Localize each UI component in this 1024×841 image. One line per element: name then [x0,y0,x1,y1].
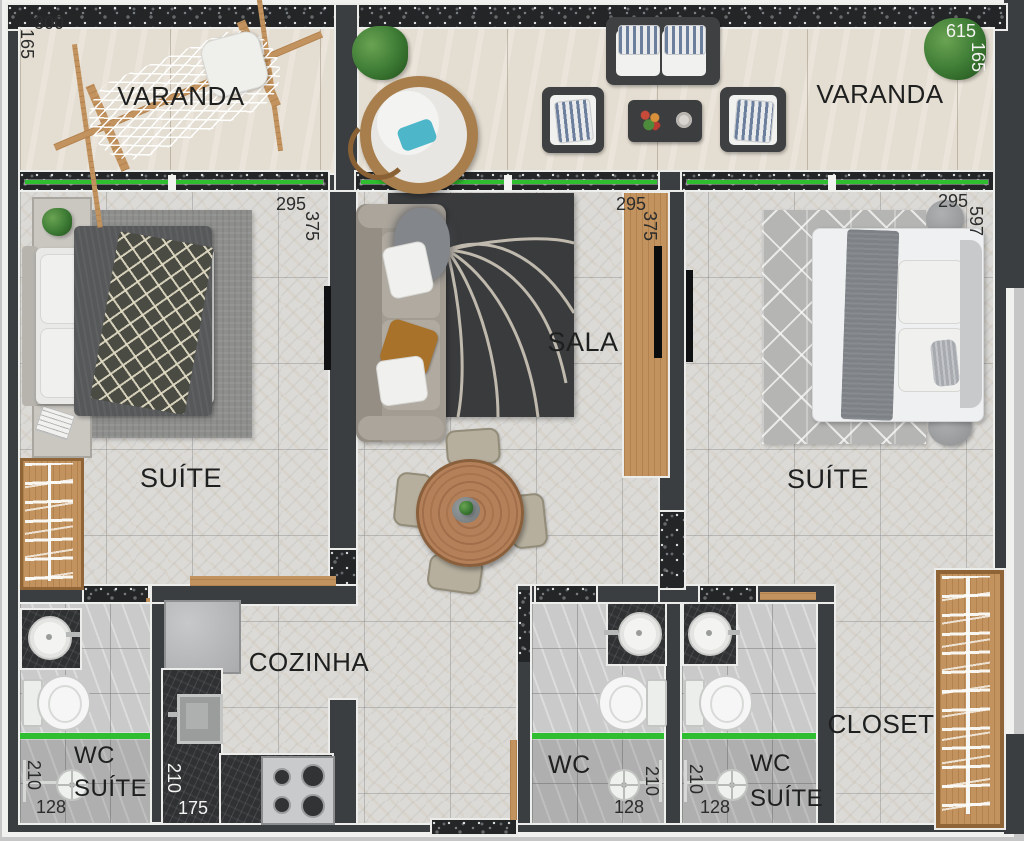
wall-corner-bottom-right [1004,734,1024,834]
toilet-seat [48,685,82,723]
window-suite-right [682,172,993,193]
dim-sala-depth: 375 [639,211,660,245]
flower-centerpiece [638,108,662,132]
dim-cozinha-width: 175 [178,798,208,819]
stove [261,756,335,825]
suiteL-wardrobe [20,458,84,590]
burner [301,794,325,818]
room-label-wc-suiteL-1: WC [74,742,144,770]
closet-wardrobe [936,570,1004,828]
bed-pillow [898,260,964,324]
burner [301,764,325,788]
entry-door-jamb [510,740,517,820]
striped-pillow [664,25,706,55]
faucet [604,630,618,635]
balcony-armchair [720,87,786,152]
bed-headboard [960,240,982,408]
toilet-seat [710,685,744,723]
potted-plant [352,26,408,80]
hangers [25,463,73,581]
wc-suiteR-shower-glass [682,733,816,739]
room-label-wc: WC [548,751,608,780]
burner [273,796,291,814]
balcony-sofa [606,17,720,85]
egg-chair-stand [348,118,410,180]
parapet-wall [8,5,1006,29]
gray-throw [841,229,900,421]
dim-wc-depth: 210 [641,766,662,804]
dim-varanda-left-width: 300 [34,13,64,34]
door-threshold-suiteR [660,512,684,588]
tray [676,112,692,128]
centerpiece-sprig [459,501,473,515]
entry-threshold [432,820,516,834]
drain [46,634,52,640]
room-label-suite-right: SUÍTE [763,464,893,495]
striped-pillow [733,98,775,143]
window-mullion [828,175,836,190]
table-centerpiece [452,497,480,523]
kitchen-ledge [190,576,336,586]
room-label-wc-suiteR-1: WC [750,750,810,778]
sink-basin-round [618,612,662,656]
room-label-suite-left: SUÍTE [116,463,246,494]
tv-suiteR [686,270,693,362]
wc-shower-glass [532,733,664,739]
tv-suiteL [324,286,331,370]
wall-suiteL-sala [330,192,356,550]
hangers [942,576,990,814]
kitchen-sink [177,694,223,744]
door-threshold-wc [536,586,596,604]
dim-suite-right-depth: 597 [965,206,986,240]
toilet-bowl [598,675,652,731]
door-threshold-wc-suiteR [700,586,756,604]
window-pier-wall [660,172,684,193]
dim-varanda-left-depth: 165 [16,29,37,63]
striped-pillow [618,25,660,55]
toilet-bowl [699,675,753,731]
room-label-wc-suiteL-2: SUÍTE [74,775,164,803]
faucet [168,712,178,717]
dim-suite-left-depth: 375 [301,211,322,245]
dim-cozinha-depth: 210 [163,763,184,801]
wc-suiteL-shower-glass [20,733,150,739]
drain [706,630,712,636]
toilet-bowl [37,675,91,731]
sliding-glass-door [687,180,988,184]
toilet-tank [646,679,667,727]
floor-plan: VARANDA VARANDA SUÍTE SALA SUÍTE COZINHA… [0,0,1024,841]
sink-basin-round [28,616,72,660]
window-mullion [504,175,512,190]
dim-suite-right-width: 295 [938,191,968,212]
room-label-closet: CLOSET [811,709,951,740]
burner [273,768,291,786]
faucet [66,632,80,637]
sink-basin-round [688,612,732,656]
sofa-armrest [358,416,444,440]
dim-wc-suiteR-width: 128 [700,797,730,818]
wall-pier-granite [518,590,532,662]
room-label-sala: SALA [533,327,633,358]
dim-wc-width: 128 [614,797,644,818]
sofa-pillow [375,355,429,407]
ledge-wc-suiteR [760,592,816,600]
wall-corner-top-right [1004,0,1024,288]
toilet-seat [609,685,643,723]
accent-pillow [930,339,961,387]
door-threshold-wc-suiteL [84,586,148,604]
dim-wc-suiteL-width: 128 [36,797,66,818]
room-label-varanda-right: VARANDA [805,79,955,110]
fridge [164,600,241,674]
sofa-back [356,204,382,442]
striped-pillow [554,98,594,144]
room-label-varanda-left: VARANDA [106,81,256,112]
faucet [728,630,740,635]
tv-sala [654,246,662,358]
dim-wc-suiteL-depth: 210 [23,760,44,798]
dim-varanda-right-width: 615 [946,21,976,42]
coffee-table [628,100,702,142]
potted-plant [42,208,72,236]
dim-varanda-right-depth: 165 [967,42,988,76]
drain [636,630,642,636]
balcony-armchair [542,87,604,153]
room-label-wc-suiteR-2: SUÍTE [750,785,840,813]
sink-basin [186,703,208,729]
room-label-cozinha: COZINHA [234,647,384,678]
